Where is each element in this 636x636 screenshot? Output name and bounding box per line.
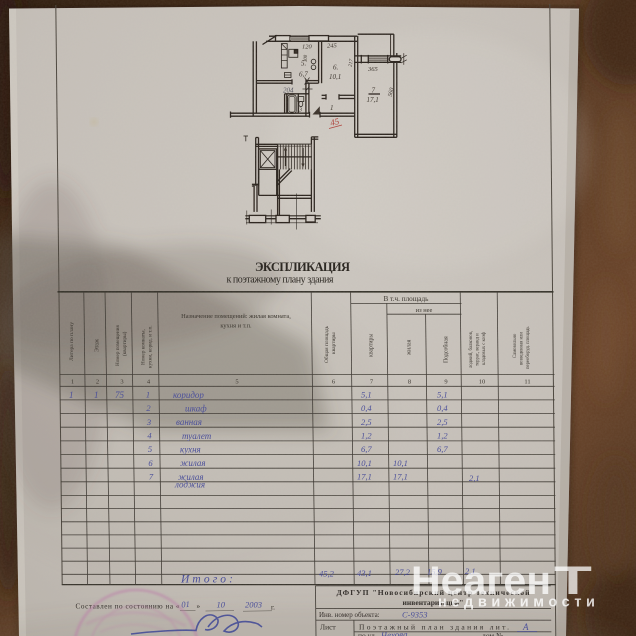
svg-text:недвижимости: недвижимости xyxy=(438,595,600,611)
